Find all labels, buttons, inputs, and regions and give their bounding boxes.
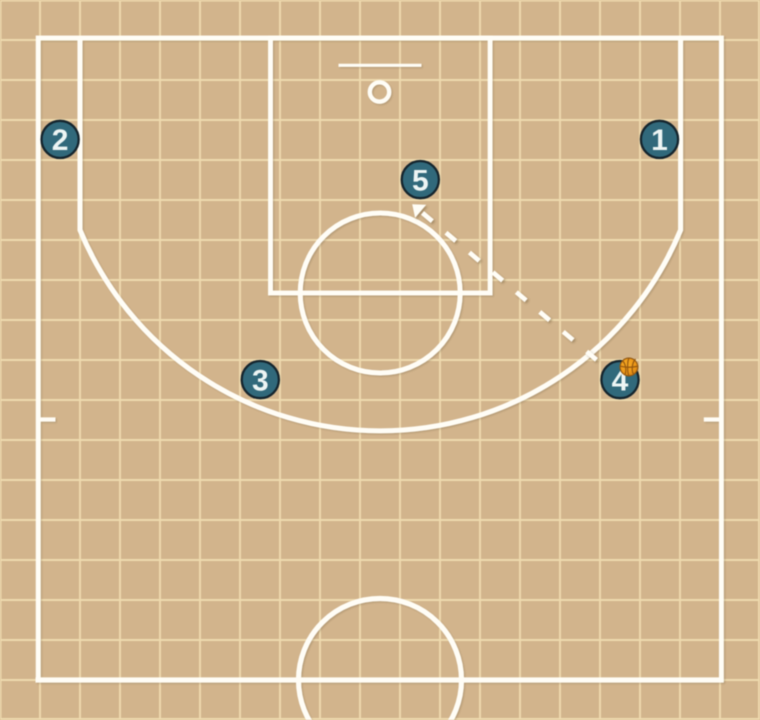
svg-text:3: 3 (252, 364, 269, 397)
svg-text:1: 1 (651, 124, 668, 157)
svg-text:2: 2 (52, 124, 69, 157)
svg-text:5: 5 (412, 164, 429, 197)
